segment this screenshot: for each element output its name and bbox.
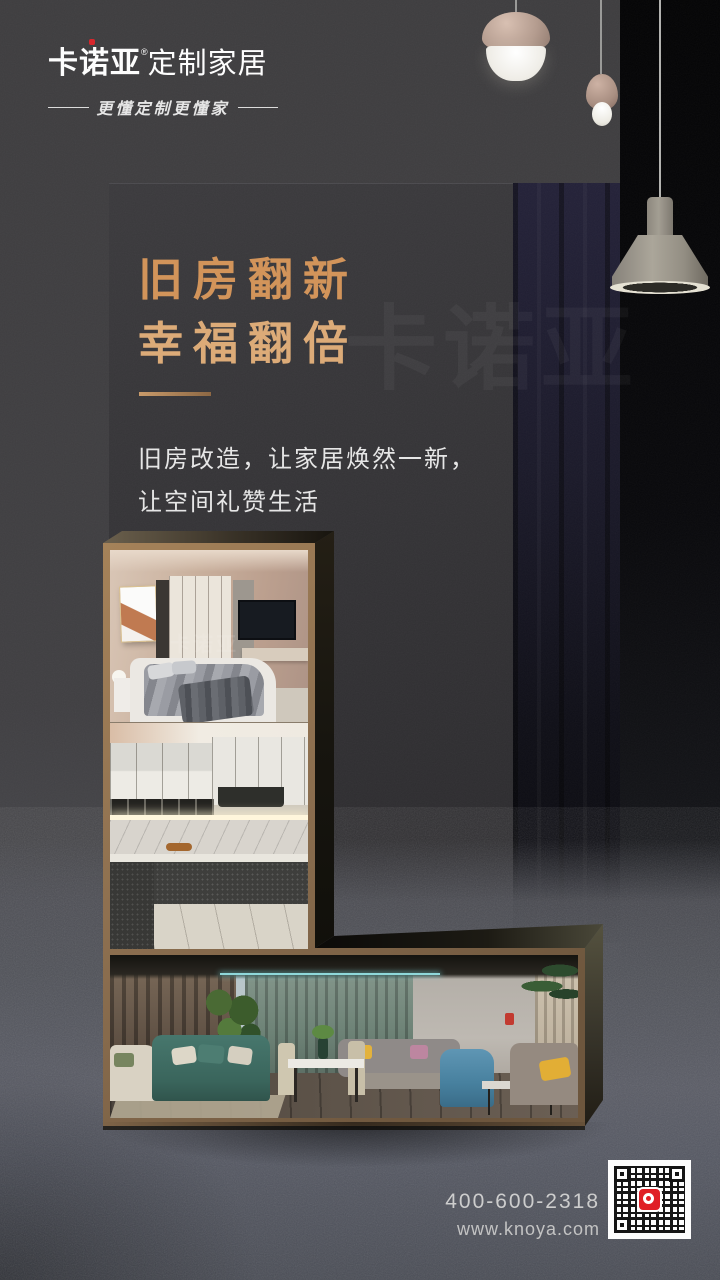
headline-line2: 幸福翻倍 — [138, 312, 358, 376]
bedroom-tv — [238, 600, 296, 640]
body-copy-line1: 旧房改造，让家居焕然一新， — [138, 438, 476, 481]
kitchen-upper-cabinets-left — [110, 743, 214, 799]
brand-slogan: 更懂定制更懂家 — [48, 95, 278, 119]
kitchen-photo — [110, 722, 308, 949]
lamp-neck — [647, 197, 673, 239]
living-room-photo — [110, 955, 578, 1118]
collage-floor-shadow — [95, 1122, 615, 1168]
registered-mark: ® — [141, 47, 148, 57]
brand-slogan-text: 更懂定制更懂家 — [97, 95, 230, 119]
living-palm-plant — [518, 955, 578, 1007]
living-vase-plant — [312, 1025, 334, 1039]
bedroom-photo: 卡诺亚 — [110, 550, 308, 722]
living-green-pillow — [114, 1053, 134, 1067]
living-blue-armchair — [440, 1049, 494, 1107]
living-ceiling — [110, 955, 578, 979]
industrial-pendant-lamp — [608, 195, 712, 300]
website-link[interactable]: www.knoya.com — [330, 1219, 600, 1240]
qr-finder-icon — [614, 1217, 630, 1233]
living-pink-pillow — [410, 1045, 428, 1059]
kitchen-backsplash — [110, 820, 308, 854]
headline: 旧房翻新 幸福翻倍 — [138, 248, 358, 376]
kitchen-cabinet-column — [110, 862, 154, 949]
headline-line1: 旧房翻新 — [138, 248, 358, 312]
qr-finder-icon — [614, 1166, 630, 1182]
kitchen-range-hood — [218, 787, 284, 807]
photo-collage: 卡诺亚 — [103, 531, 603, 1131]
living-sofa-pillow — [171, 1045, 197, 1065]
living-table-legs — [294, 1068, 358, 1102]
living-dining-chair — [278, 1043, 295, 1095]
contact-block: 400-600-2318 www.knoya.com — [330, 1190, 600, 1240]
phone-number[interactable]: 400-600-2318 — [330, 1190, 600, 1214]
brand-name: 卡诺亚 — [48, 47, 141, 80]
living-sofa-pillow — [227, 1045, 253, 1065]
living-wall-sign — [505, 1013, 514, 1025]
brand-suffix: 定制家居 — [148, 48, 268, 80]
qr-center-logo-icon — [637, 1187, 662, 1212]
body-copy-line2: 让空间礼赞生活 — [138, 481, 476, 524]
acorn-pendant-lamp-small — [586, 70, 618, 132]
poster: 卡诺亚 卡诺亚®定制家居 更懂定制更懂家 旧房翻新 幸福翻倍 旧房改造，让家居焕… — [0, 0, 720, 1280]
lamp-shade — [612, 235, 708, 287]
lamp-glass-shade — [486, 46, 546, 81]
qr-finder-icon — [669, 1166, 685, 1182]
acorn-pendant-lamp-large — [482, 0, 550, 86]
lamp-cord — [600, 0, 602, 74]
kitchen-floor — [154, 904, 308, 949]
gold-divider — [139, 392, 211, 396]
bedroom-ceiling — [110, 550, 308, 572]
bedroom-pillow — [172, 660, 197, 675]
brand-red-dot — [89, 39, 95, 45]
brand-logo: 卡诺亚®定制家居 更懂定制更懂家 — [48, 38, 278, 119]
bedroom-wall-art — [119, 585, 158, 642]
lamp-cord — [659, 0, 661, 198]
lamp-rim-light — [610, 281, 710, 294]
lamp-bulb — [592, 102, 612, 126]
qr-code — [608, 1160, 691, 1239]
kitchen-counter-items — [166, 843, 192, 851]
living-sofa-pillow — [197, 1044, 224, 1064]
kitchen-open-shelf — [110, 799, 214, 815]
body-copy: 旧房改造，让家居焕然一新， 让空间礼赞生活 — [138, 438, 476, 524]
living-led-strip — [220, 973, 440, 975]
kitchen-countertop — [110, 854, 308, 862]
living-dining-table — [288, 1059, 364, 1068]
photo-watermark: 卡诺亚 — [170, 628, 239, 657]
living-table-vase — [318, 1037, 328, 1059]
